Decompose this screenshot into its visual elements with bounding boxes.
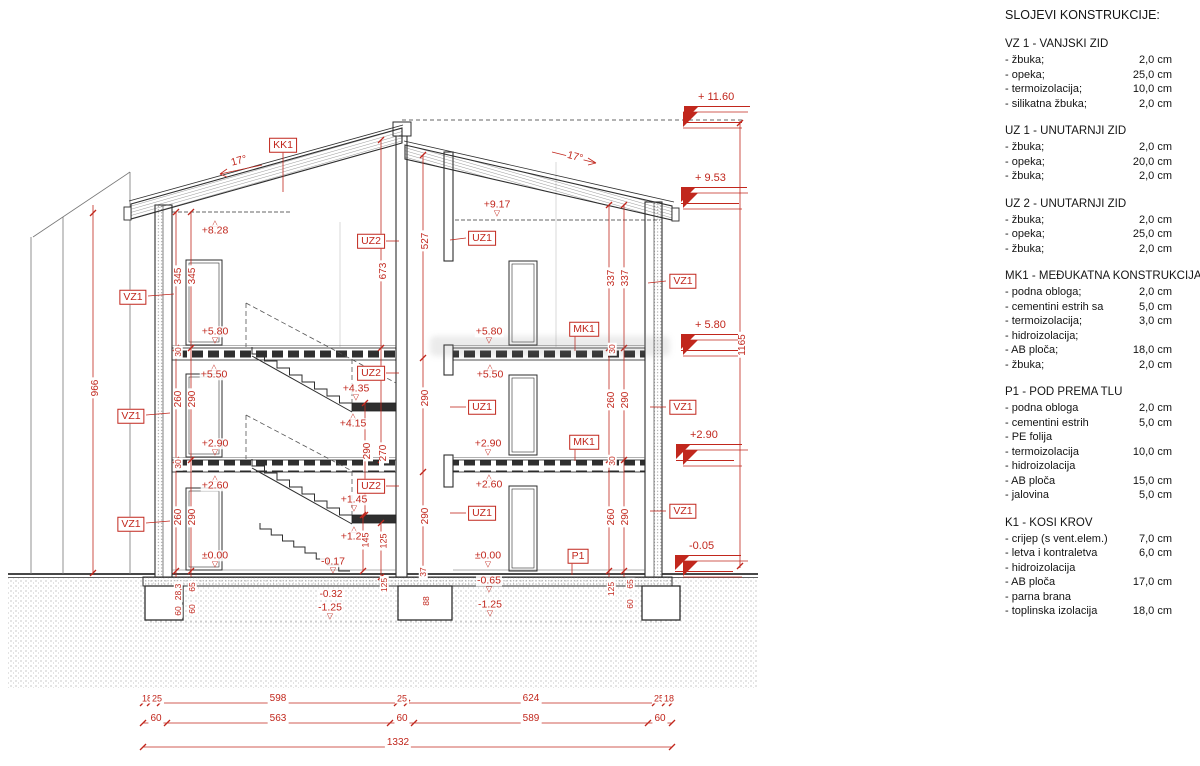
dimension-text: 290 — [188, 507, 198, 528]
legend-row-label: - letva i kontraletva — [1005, 546, 1097, 561]
legend-row-label: - AB ploča; — [1005, 343, 1058, 358]
elevation-marker: +4.35▽ — [342, 383, 371, 399]
legend-row-label: - žbuka; — [1005, 53, 1044, 68]
elevation-marker: -0.17▽ — [320, 556, 346, 572]
component-label: UZ1 — [468, 400, 496, 415]
dimension-text: 18 — [662, 695, 676, 704]
legend-row: - termoizolacija;10,0 cm — [1005, 82, 1172, 97]
legend-row-label: - podna obloga; — [1005, 285, 1081, 300]
legend-row-label: - parna brana — [1005, 590, 1071, 605]
legend-row: - hidroizolacija; — [1005, 329, 1172, 344]
component-label: UZ1 — [468, 506, 496, 521]
legend-row-label: - AB ploča — [1005, 474, 1055, 489]
legend-row-value: 3,0 cm — [1139, 314, 1172, 329]
legend-section-heading: UZ 2 - UNUTARNJI ZID — [1005, 198, 1200, 210]
dimension-text: 30 — [608, 342, 617, 355]
dimension-text: 60 — [652, 714, 667, 724]
dimension-text: 966 — [91, 378, 101, 399]
dimension-text: 345 — [174, 266, 184, 287]
elevation-marker: +5.80▽ — [201, 326, 230, 342]
legend-row-value: 2,0 cm — [1139, 285, 1172, 300]
component-label: VZ1 — [119, 290, 146, 305]
dimension-text: 145 — [362, 530, 371, 549]
legend-section: MK1 - MEĐUKATNA KONSTRUKCIJA- podna oblo… — [1005, 270, 1200, 372]
dimension-text: 125 — [380, 576, 389, 594]
legend-row-label: - podna obloga — [1005, 401, 1078, 416]
dimension-text: 37 — [419, 565, 428, 578]
component-label: MK1 — [569, 435, 599, 450]
elevation-marker: ±0.00▽ — [201, 550, 229, 566]
legend-row-value: 10,0 cm — [1133, 445, 1172, 460]
component-label: P1 — [568, 549, 589, 564]
legend-row: - termoizolacija;3,0 cm — [1005, 314, 1172, 329]
legend-row-value: 2,0 cm — [1139, 358, 1172, 373]
legend-row-value: 25,0 cm — [1133, 68, 1172, 83]
dimension-text: 30 — [608, 454, 617, 467]
legend-section-heading: VZ 1 - VANJSKI ZID — [1005, 38, 1200, 50]
dimension-text: 65 — [188, 580, 197, 593]
legend-row: - opeka;25,0 cm — [1005, 68, 1172, 83]
legend-row: - PE folija — [1005, 430, 1172, 445]
legend-row-label: - žbuka; — [1005, 213, 1044, 228]
dimension-text: 60 — [626, 597, 635, 610]
dimension-text: 290 — [621, 507, 631, 528]
dimension-text: 290 — [421, 388, 431, 409]
legend-row: - podna obloga;2,0 cm — [1005, 285, 1172, 300]
dimension-text: 290 — [363, 441, 373, 462]
elevation-marker: +5.80▽ — [475, 326, 504, 342]
legend-section: VZ 1 - VANJSKI ZID- žbuka;2,0 cm- opeka;… — [1005, 38, 1200, 111]
dimension-text: 125 — [607, 580, 616, 598]
legend-row: - parna brana — [1005, 590, 1172, 605]
legend-row: - žbuka;2,0 cm — [1005, 242, 1172, 257]
component-label: VZ1 — [669, 504, 696, 519]
legend-row-label: - termoizolacija; — [1005, 314, 1082, 329]
legend-row: - jalovina5,0 cm — [1005, 488, 1172, 503]
legend-row-label: - jalovina — [1005, 488, 1049, 503]
dimension-text: 563 — [268, 714, 289, 724]
elevation-marker: △+2.60 — [475, 474, 504, 490]
legend-section-heading: MK1 - MEĐUKATNA KONSTRUKCIJA — [1005, 270, 1200, 282]
elevation-marker: -1.25▽ — [477, 599, 503, 615]
legend-row: - cementini estrih5,0 cm — [1005, 416, 1172, 431]
dimension-text: 60 — [188, 602, 197, 615]
legend-row-label: - žbuka; — [1005, 242, 1044, 257]
roof-angle-label: 17° — [229, 154, 249, 169]
legend-row: - opeka;25,0 cm — [1005, 227, 1172, 242]
elevation-marker: +2.90▽ — [201, 438, 230, 454]
legend-row-label: - cementini estrih — [1005, 416, 1089, 431]
legend-row-label: - termoizolacija; — [1005, 82, 1082, 97]
legend-row: - letva i kontraletva6,0 cm — [1005, 546, 1172, 561]
legend-row-value: 25,0 cm — [1133, 227, 1172, 242]
legend-row-label: - hidroizolacija — [1005, 561, 1075, 576]
elevation-flag: -0.05 — [675, 540, 743, 574]
legend-section: P1 - POD PREMA TLU- podna obloga2,0 cm- … — [1005, 386, 1200, 503]
legend-row-value: 15,0 cm — [1133, 474, 1172, 489]
elevation-marker: +9.17▽ — [483, 199, 512, 215]
legend-row-value: 2,0 cm — [1139, 169, 1172, 184]
dimension-text: 60 — [174, 604, 183, 617]
legend-row: - žbuka;2,0 cm — [1005, 53, 1172, 68]
legend-title: SLOJEVI KONSTRUKCIJE: — [1005, 8, 1200, 22]
component-label: UZ2 — [357, 234, 385, 249]
legend-row-label: - žbuka; — [1005, 358, 1044, 373]
legend-row-value: 2,0 cm — [1139, 242, 1172, 257]
component-label: UZ1 — [468, 231, 496, 246]
legend-row-label: - AB ploča — [1005, 575, 1055, 590]
elevation-flag: + 11.60 — [684, 91, 752, 125]
dimension-text: 345 — [188, 266, 198, 287]
component-label: VZ1 — [669, 274, 696, 289]
legend-row-label: - hidroizolacija — [1005, 459, 1075, 474]
component-label: KK1 — [269, 138, 297, 153]
legend-row-value: 18,0 cm — [1133, 343, 1172, 358]
legend-row-value: 2,0 cm — [1139, 213, 1172, 228]
legend-row-label: - opeka; — [1005, 68, 1045, 83]
legend-section: UZ 1 - UNUTARNJI ZID- žbuka;2,0 cm- opek… — [1005, 125, 1200, 184]
legend-row-value: 5,0 cm — [1139, 300, 1172, 315]
dimension-text: 624 — [521, 694, 542, 704]
legend-row-label: - PE folija — [1005, 430, 1052, 445]
legend-section-heading: P1 - POD PREMA TLU — [1005, 386, 1200, 398]
dimension-text: 260 — [607, 390, 617, 411]
elevation-marker: -0.65▽ — [476, 575, 502, 591]
dimension-text: 125 — [380, 531, 389, 550]
legend-row-label: - termoizolacija — [1005, 445, 1079, 460]
legend-row-label: - cementini estrih sa — [1005, 300, 1103, 315]
legend-row-value: 2,0 cm — [1139, 140, 1172, 155]
component-label: VZ1 — [117, 517, 144, 532]
dimension-text: 270 — [379, 443, 389, 464]
dimension-text: 290 — [421, 506, 431, 527]
legend-row-value: 18,0 cm — [1133, 604, 1172, 619]
architectural-section-sheet: KK1VZ1VZ1VZ1UZ2UZ2UZ2UZ1UZ1UZ1VZ1VZ1VZ1M… — [0, 0, 1200, 766]
legend-row: - termoizolacija10,0 cm — [1005, 445, 1172, 460]
dimension-text: 673 — [379, 261, 389, 282]
dimension-text: 589 — [521, 714, 542, 724]
legend-row: - žbuka;2,0 cm — [1005, 140, 1172, 155]
legend-row-label: - crijep (s vent.elem.) — [1005, 532, 1108, 547]
legend-section: K1 - KOSI KROV- crijep (s vent.elem.)7,0… — [1005, 517, 1200, 619]
dimension-text: 1165 — [738, 332, 748, 358]
roof-angle-label: 17° — [565, 150, 585, 165]
legend-row-label: - opeka; — [1005, 155, 1045, 170]
component-label: MK1 — [569, 322, 599, 337]
legend-row: - hidroizolacija — [1005, 561, 1172, 576]
elevation-marker: -1.25▽ — [317, 602, 343, 618]
elevation-flag: +2.90 — [676, 429, 744, 463]
component-label: UZ2 — [357, 479, 385, 494]
elevation-marker: △+4.15 — [339, 413, 368, 429]
dimension-text: 260 — [607, 507, 617, 528]
dimension-text: 290 — [188, 389, 198, 410]
legend-row-value: 20,0 cm — [1133, 155, 1172, 170]
legend-section-heading: K1 - KOSI KROV — [1005, 517, 1200, 529]
dimension-text: 598 — [268, 694, 289, 704]
elevation-marker: △+5.50 — [200, 364, 229, 380]
legend-row-value: 2,0 cm — [1139, 97, 1172, 112]
elevation-flag: + 9.53 — [681, 172, 749, 206]
dimension-text: 260 — [174, 389, 184, 410]
dimension-text: 260 — [174, 507, 184, 528]
dimension-text: 65 — [626, 577, 635, 590]
dimension-text: 60 — [148, 714, 163, 724]
legend-section: UZ 2 - UNUTARNJI ZID- žbuka;2,0 cm- opek… — [1005, 198, 1200, 257]
dimension-text: 290 — [621, 390, 631, 411]
legend-row: - hidroizolacija — [1005, 459, 1172, 474]
legend-row: - silikatna žbuka;2,0 cm — [1005, 97, 1172, 112]
dimension-text: 25 — [150, 695, 164, 704]
legend-row: - žbuka;2,0 cm — [1005, 169, 1172, 184]
dimension-text: 60 — [394, 714, 409, 724]
legend-row-label: - žbuka; — [1005, 169, 1044, 184]
legend-row: - AB ploča15,0 cm — [1005, 474, 1172, 489]
elevation-marker: +2.90▽ — [474, 438, 503, 454]
elevation-marker: +1.45▽ — [340, 494, 369, 510]
legend-row: - žbuka;2,0 cm — [1005, 358, 1172, 373]
legend-panel: SLOJEVI KONSTRUKCIJE: VZ 1 - VANJSKI ZID… — [1005, 8, 1200, 633]
legend-row-value: 2,0 cm — [1139, 401, 1172, 416]
component-label: UZ2 — [357, 366, 385, 381]
legend-row-label: - hidroizolacija; — [1005, 329, 1078, 344]
component-label: VZ1 — [669, 400, 696, 415]
dimension-text: -0.32 — [318, 590, 345, 600]
legend-row-label: - žbuka; — [1005, 140, 1044, 155]
legend-row: - crijep (s vent.elem.)7,0 cm — [1005, 532, 1172, 547]
dimension-text: 28,3 — [174, 582, 183, 603]
legend-row-value: 17,0 cm — [1133, 575, 1172, 590]
dimension-text: 337 — [607, 268, 617, 289]
legend-row-label: - silikatna žbuka; — [1005, 97, 1087, 112]
legend-row-label: - toplinska izolacija — [1005, 604, 1097, 619]
legend-row: - cementini estrih sa5,0 cm — [1005, 300, 1172, 315]
dimension-text: 30 — [174, 457, 183, 470]
legend-row-value: 5,0 cm — [1139, 416, 1172, 431]
legend-row: - podna obloga2,0 cm — [1005, 401, 1172, 416]
legend-row: - AB ploča;18,0 cm — [1005, 343, 1172, 358]
dimension-text: 30 — [174, 345, 183, 358]
elevation-marker: △+8.28 — [201, 220, 230, 236]
legend-section-heading: UZ 1 - UNUTARNJI ZID — [1005, 125, 1200, 137]
legend-row-value: 5,0 cm — [1139, 488, 1172, 503]
dimension-text: 88 — [422, 594, 431, 607]
legend-row-value: 10,0 cm — [1133, 82, 1172, 97]
dimension-text: 1332 — [385, 738, 411, 748]
elevation-marker: ±0.00▽ — [474, 550, 502, 566]
legend-row-value: 6,0 cm — [1139, 546, 1172, 561]
elevation-marker: △+2.60 — [201, 475, 230, 491]
legend-row: - AB ploča17,0 cm — [1005, 575, 1172, 590]
dimension-text: 527 — [421, 231, 431, 252]
legend-row-value: 7,0 cm — [1139, 532, 1172, 547]
legend-row-label: - opeka; — [1005, 227, 1045, 242]
legend-row: - toplinska izolacija18,0 cm — [1005, 604, 1172, 619]
component-label: VZ1 — [117, 409, 144, 424]
legend-row-value: 2,0 cm — [1139, 53, 1172, 68]
legend-row: - žbuka;2,0 cm — [1005, 213, 1172, 228]
dimension-text: 25 — [395, 695, 409, 704]
dimension-text: 337 — [621, 268, 631, 289]
legend-row: - opeka;20,0 cm — [1005, 155, 1172, 170]
legend-sections: VZ 1 - VANJSKI ZID- žbuka;2,0 cm- opeka;… — [1005, 38, 1200, 619]
elevation-marker: △+5.50 — [476, 364, 505, 380]
